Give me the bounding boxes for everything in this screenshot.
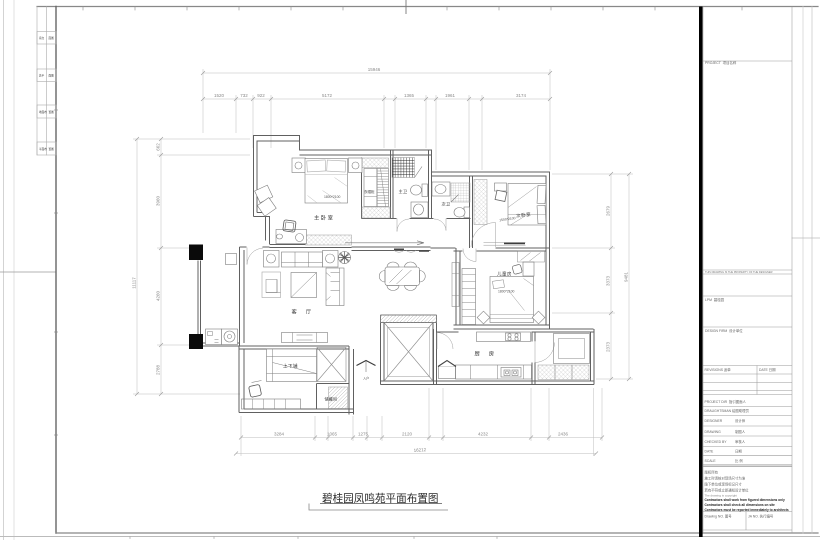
svg-text:1520: 1520 — [214, 93, 225, 98]
svg-text:Contractors shall work from fi: Contractors shall work from figured dime… — [705, 498, 785, 502]
svg-text:2120: 2120 — [402, 432, 413, 437]
svg-text:衣帽柜: 衣帽柜 — [364, 189, 375, 194]
svg-text:主卫: 主卫 — [399, 188, 408, 194]
svg-text:1800*2100: 1800*2100 — [498, 290, 515, 294]
svg-text:主卧室: 主卧室 — [314, 214, 334, 222]
svg-text:若有不符或立即通知设计单位: 若有不符或立即通知设计单位 — [705, 488, 750, 493]
svg-text:总平: 总平 — [39, 74, 45, 78]
svg-text:15946: 15946 — [368, 67, 381, 72]
svg-text:DESIGN FIRM 设计单位: DESIGN FIRM 设计单位 — [705, 328, 743, 333]
svg-text:儿童房: 儿童房 — [497, 271, 512, 278]
svg-text:732: 732 — [240, 93, 248, 98]
svg-text:厨房: 厨房 — [475, 350, 504, 358]
svg-text:Drawing NO. 图号: Drawing NO. 图号 — [705, 514, 733, 519]
svg-text:PROJECT DIR 指引图面人: PROJECT DIR 指引图面人 — [705, 399, 747, 404]
svg-text:PROJECT 项目名称: PROJECT 项目名称 — [705, 60, 737, 65]
svg-text:SCALE: SCALE — [705, 459, 717, 463]
svg-text:3960: 3960 — [156, 195, 161, 206]
svg-text:碧桂园凤鸣苑平面布置图: 碧桂园凤鸣苑平面布置图 — [322, 492, 439, 505]
svg-text:THIS DRAWING IS THE PROPERTY O: THIS DRAWING IS THE PROPERTY OF THE DESI… — [705, 270, 773, 274]
svg-text:3284: 3284 — [274, 432, 285, 437]
svg-text:1065: 1065 — [327, 432, 338, 437]
svg-text:1961: 1961 — [445, 93, 456, 98]
svg-text:南立: 南立 — [39, 36, 45, 40]
svg-text:9481: 9481 — [624, 271, 629, 282]
svg-text:LPM 碧桂园: LPM 碧桂园 — [705, 297, 725, 302]
svg-text:DATE 日期: DATE 日期 — [759, 367, 776, 372]
svg-text:1800*2100: 1800*2100 — [324, 195, 341, 199]
svg-text:面图: 面图 — [49, 36, 55, 40]
svg-text:4232: 4232 — [478, 432, 489, 437]
svg-text:11117: 11117 — [132, 277, 137, 289]
svg-text:平面布: 平面布 — [39, 147, 47, 151]
svg-text:审核人: 审核人 — [735, 439, 746, 444]
svg-text:2373: 2373 — [606, 341, 611, 352]
svg-text:The drawing is copyright: The drawing is copyright — [705, 493, 738, 497]
svg-text:3174: 3174 — [516, 93, 527, 98]
svg-text:Contractors must be reported i: Contractors must be reported immediately… — [705, 508, 789, 512]
svg-text:4260: 4260 — [156, 290, 161, 301]
svg-text:2679: 2679 — [606, 205, 611, 216]
svg-text:施工时请核对现场尺寸为准: 施工时请核对现场尺寸为准 — [705, 476, 746, 481]
svg-text:DESIGNER: DESIGNER — [705, 419, 723, 423]
svg-text:面图: 面图 — [49, 74, 55, 78]
svg-text:日期: 日期 — [735, 449, 742, 454]
svg-text:2436: 2436 — [558, 432, 569, 437]
svg-text:Contractors shall check all di: Contractors shall check all dimensions o… — [705, 503, 776, 507]
svg-text:上下铺: 上下铺 — [283, 363, 298, 370]
svg-text:储藏间: 储藏间 — [325, 396, 338, 402]
svg-text:1365: 1365 — [404, 93, 415, 98]
svg-text:入户: 入户 — [363, 376, 369, 381]
svg-text:2788: 2788 — [156, 364, 161, 375]
svg-text:CHECKED BY: CHECKED BY — [705, 440, 728, 444]
svg-text:版权所有: 版权所有 — [705, 470, 719, 475]
svg-text:DATE: DATE — [705, 450, 715, 454]
svg-text:922: 922 — [257, 93, 265, 98]
svg-text:客厅: 客厅 — [292, 308, 321, 316]
svg-text:662: 662 — [156, 143, 161, 151]
svg-text:DRAWING: DRAWING — [705, 430, 722, 434]
svg-text:设计师: 设计师 — [735, 418, 746, 423]
svg-text:置图: 置图 — [49, 110, 55, 114]
svg-text:3373: 3373 — [606, 275, 611, 286]
svg-text:5172: 5172 — [322, 93, 333, 98]
svg-text:地面布: 地面布 — [39, 110, 47, 114]
svg-text:比 例: 比 例 — [735, 458, 743, 463]
svg-text:REVISIONS 返单: REVISIONS 返单 — [705, 367, 732, 372]
svg-text:1275: 1275 — [358, 432, 369, 437]
svg-text:置图: 置图 — [49, 147, 55, 151]
svg-text:隐下单位或现场标记尺寸: 隐下单位或现场标记尺寸 — [705, 482, 743, 487]
svg-text:JA NO. 执行编号: JA NO. 执行编号 — [748, 514, 774, 519]
svg-text:次卫: 次卫 — [442, 201, 451, 208]
svg-text:DRAUGHTSMAN 绘图助理员: DRAUGHTSMAN 绘图助理员 — [705, 408, 750, 413]
svg-text:制图人: 制图人 — [735, 429, 746, 434]
svg-text:16212: 16212 — [413, 447, 426, 453]
